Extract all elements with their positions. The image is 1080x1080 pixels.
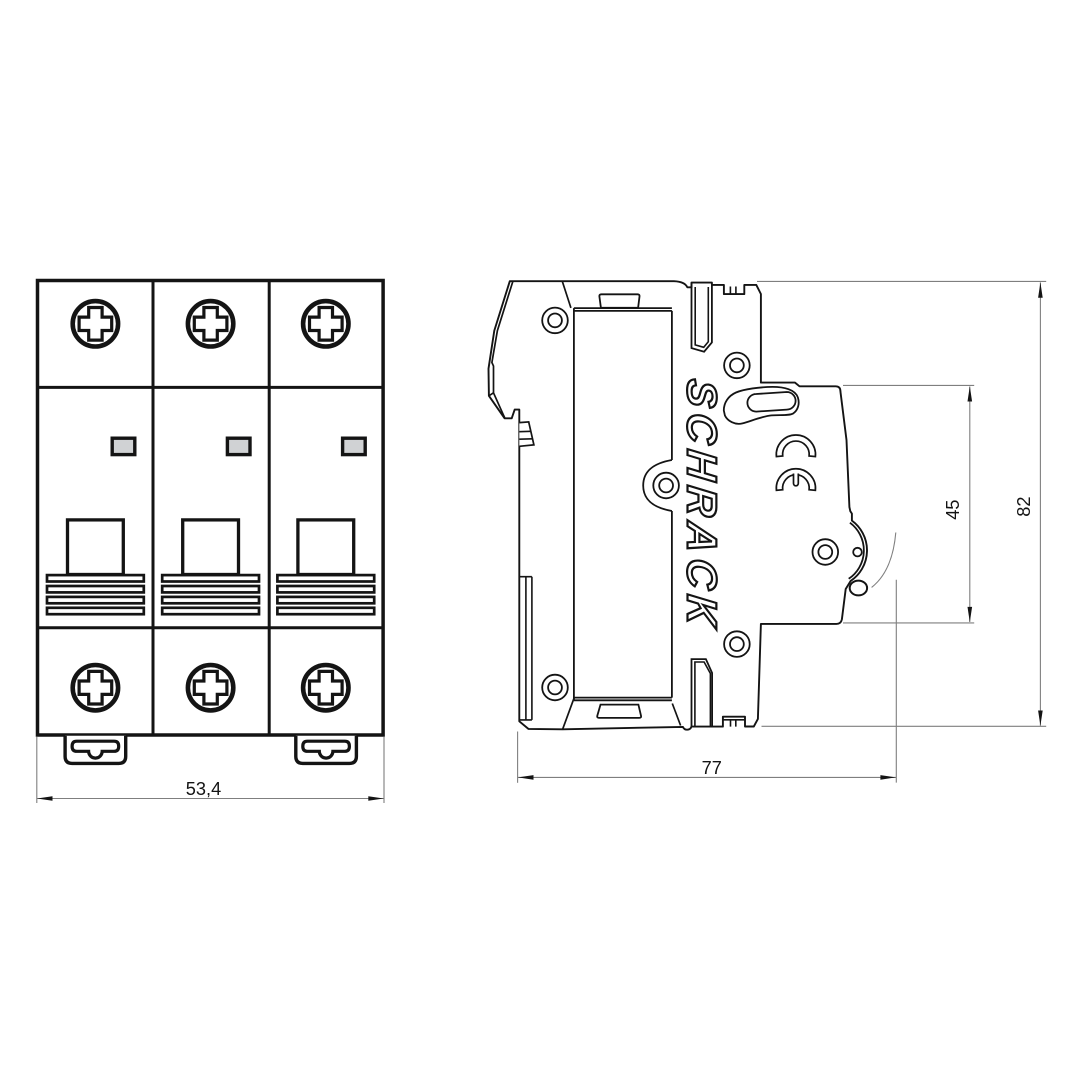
svg-text:SCHRACK: SCHRACK — [679, 377, 726, 634]
svg-text:77: 77 — [702, 758, 722, 778]
svg-text:53,4: 53,4 — [186, 779, 221, 799]
svg-text:82: 82 — [1014, 496, 1034, 516]
svg-text:45: 45 — [943, 500, 963, 520]
